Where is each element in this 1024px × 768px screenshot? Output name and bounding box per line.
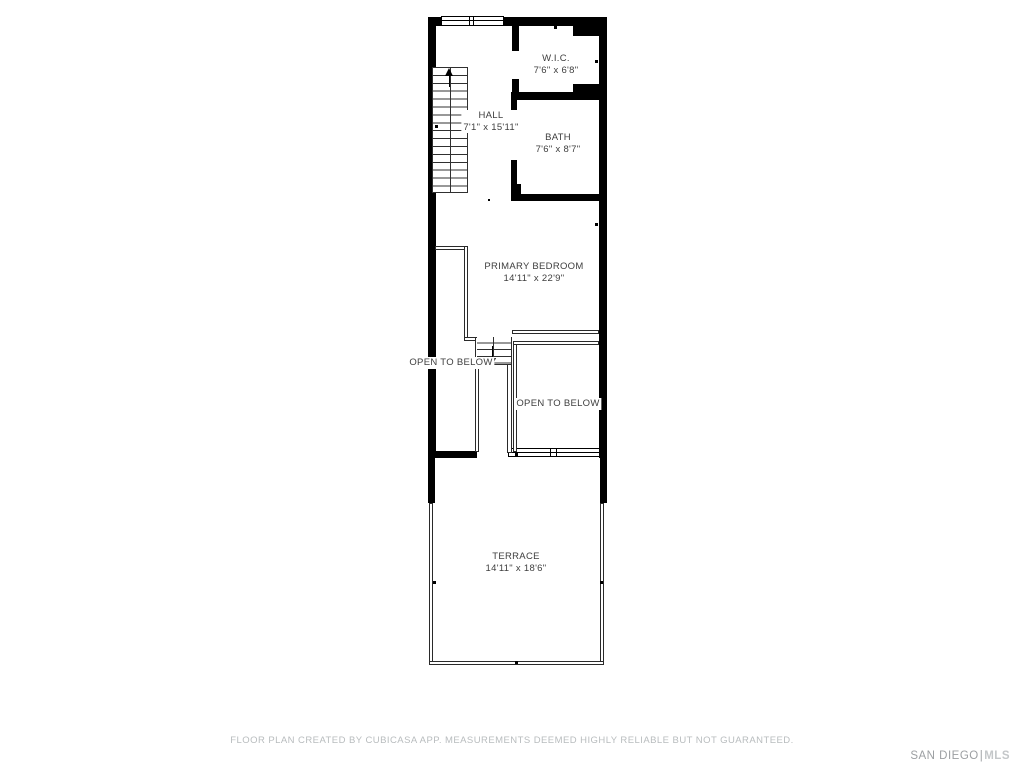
- wall-bath-bottom: [511, 194, 599, 201]
- terrace-railing-left: [429, 503, 433, 665]
- room-dims: 7'6" x 6'8": [534, 65, 579, 77]
- mls-logo-secondary: MLS: [984, 750, 1010, 762]
- wall-tick: [433, 581, 436, 584]
- staircase-center-line: [450, 68, 451, 192]
- floor-plan: W.I.C. 7'6" x 6'8" HALL 7'1" x 15'11" BA…: [0, 0, 1024, 768]
- wall-tick: [515, 661, 518, 664]
- mls-logo: SAN DIEGO|MLS: [910, 750, 1010, 762]
- wall-right-exterior: [599, 17, 607, 458]
- railing-open-below-top: [513, 341, 599, 345]
- window-mullion: [473, 17, 474, 25]
- room-dims: 7'1" x 15'11": [463, 122, 518, 134]
- room-name: TERRACE: [486, 551, 547, 563]
- room-label-terrace: TERRACE 14'11" x 18'6": [484, 551, 549, 574]
- wall-terrace-stub-right: [600, 458, 607, 503]
- room-dims: 7'6" x 8'7": [536, 144, 581, 156]
- wall-terrace-stub-left: [428, 458, 435, 503]
- wall-bottom-left: [428, 451, 477, 458]
- room-label-primary-bedroom: PRIMARY BEDROOM 14'11" x 22'9": [482, 261, 585, 284]
- annotation-open-to-below-right: OPEN TO BELOW: [514, 398, 601, 410]
- disclaimer-text: FLOOR PLAN CREATED BY CUBICASA APP. MEAS…: [0, 735, 1024, 746]
- terrace-railing-right: [600, 503, 604, 665]
- railing-open-below-left: [513, 341, 517, 452]
- window-bottom: [508, 448, 600, 457]
- room-label-wic: W.I.C. 7'6" x 6'8": [532, 53, 581, 76]
- wall-tick: [554, 96, 557, 99]
- wall-tick: [435, 125, 438, 128]
- mls-logo-separator: |: [980, 750, 984, 762]
- window-mullion: [556, 449, 557, 456]
- annotation-open-to-below-left: OPEN TO BELOW: [407, 357, 494, 369]
- wall-bedroom-south: [512, 330, 599, 334]
- annotation-text: OPEN TO BELOW: [516, 398, 599, 410]
- room-name: BATH: [536, 132, 581, 144]
- room-name: HALL: [463, 110, 518, 122]
- wall-tick: [600, 581, 603, 584]
- window-mullion: [469, 17, 470, 25]
- room-label-hall: HALL 7'1" x 15'11": [461, 110, 520, 133]
- room-name: W.I.C.: [534, 53, 579, 65]
- door-mark: [488, 199, 490, 201]
- window-mullion: [550, 449, 551, 456]
- room-dims: 14'11" x 18'6": [486, 563, 547, 575]
- railing-shaft-right: [464, 246, 468, 341]
- window-top: [441, 16, 504, 26]
- stairs-up-arrow-stem: [449, 75, 450, 87]
- wall-wic-notch-top: [573, 25, 599, 36]
- wall-tick: [554, 26, 557, 29]
- railing-shaft-top: [435, 246, 466, 250]
- mls-logo-primary: SAN DIEGO: [910, 750, 978, 762]
- wall-tick: [515, 453, 518, 456]
- wall-tick: [595, 60, 598, 63]
- annotation-text: OPEN TO BELOW: [409, 357, 492, 369]
- room-name: PRIMARY BEDROOM: [484, 261, 583, 273]
- wall-tick: [595, 223, 598, 226]
- room-dims: 14'11" x 22'9": [484, 273, 583, 285]
- room-label-bath: BATH 7'6" x 8'7": [534, 132, 583, 155]
- wall-wic-left-upper: [512, 25, 519, 51]
